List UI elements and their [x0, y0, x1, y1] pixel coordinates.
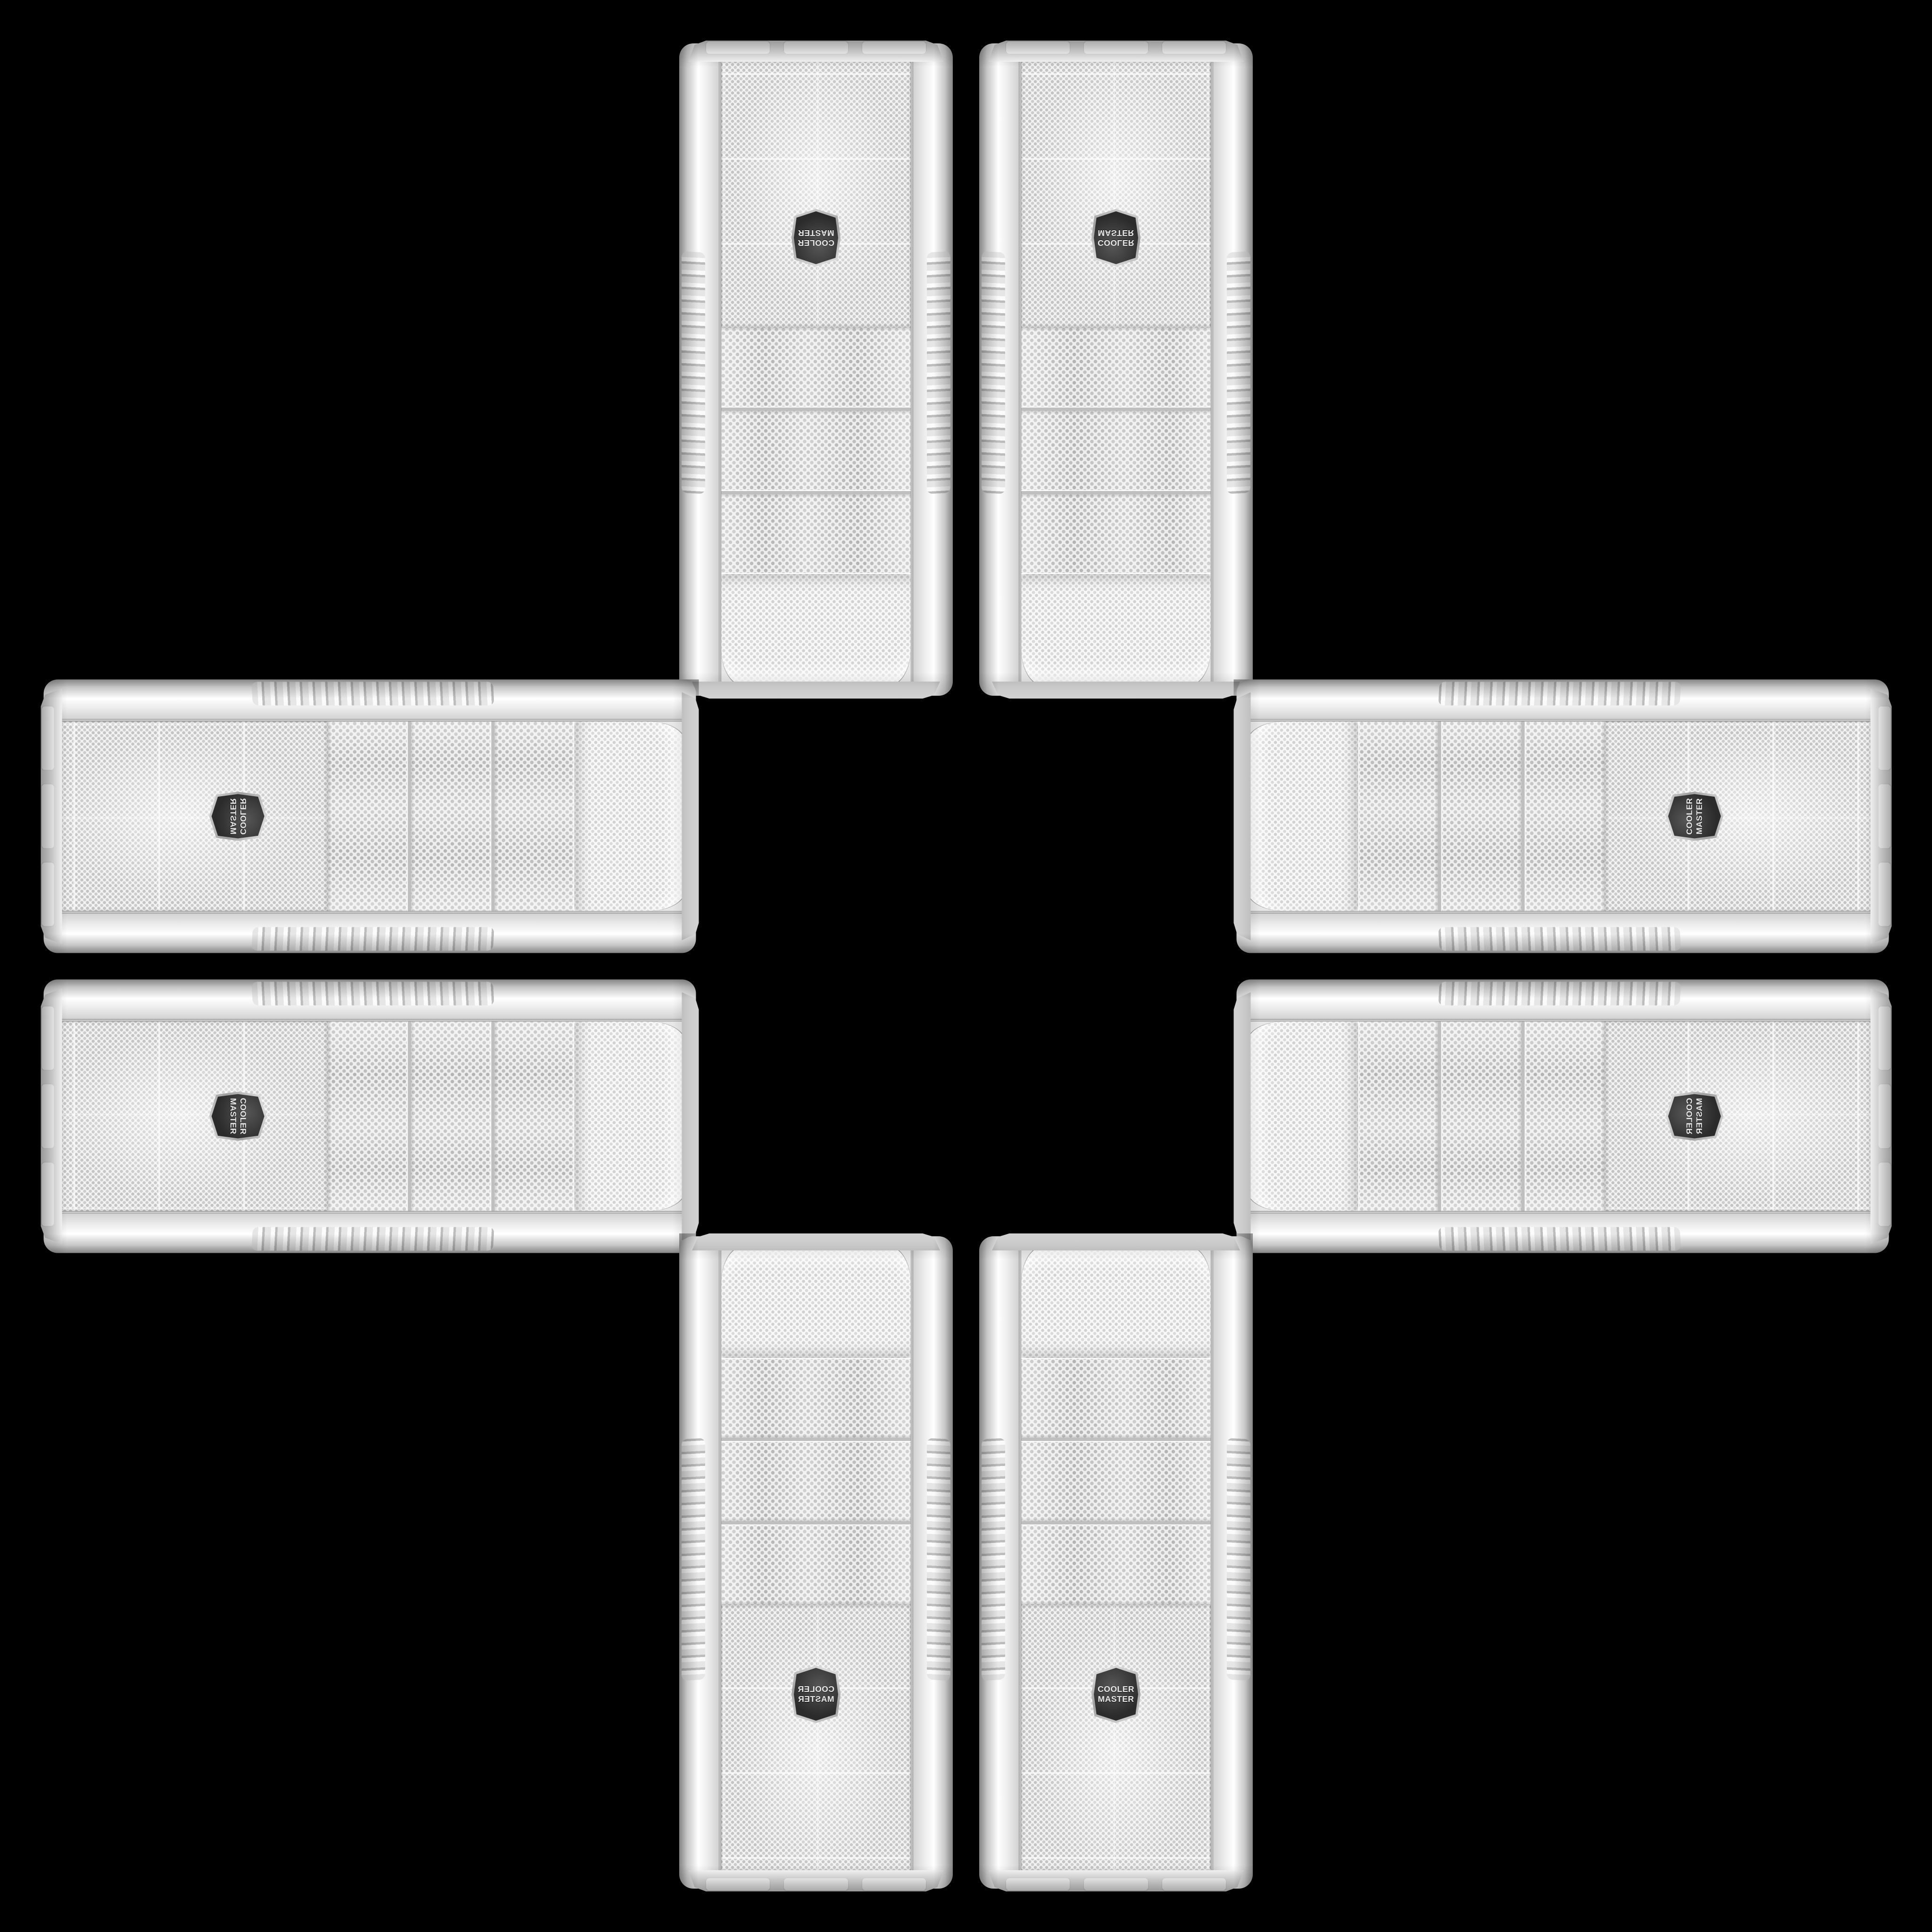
black-background: COOLER MASTER	[0, 0, 1932, 1932]
case-top-cap	[692, 682, 940, 699]
cooler-master-badge: COOLER MASTER	[1091, 209, 1141, 266]
case-bottom-cap	[41, 689, 62, 944]
badge-face: COOLER MASTER	[212, 1094, 265, 1139]
case-bottom-cap	[41, 989, 62, 1244]
cooler-master-badge: COOLER MASTER	[209, 792, 267, 841]
side-vent-ridges	[982, 1438, 1005, 1680]
drive-bay-cover	[1021, 1358, 1211, 1438]
front-bezel: COOLER MASTER	[721, 41, 911, 699]
pc-case-mirrored: COOLER MASTER	[679, 41, 953, 699]
cap-segment	[1878, 1084, 1890, 1149]
logo-text-line1: COOLER	[239, 798, 248, 835]
front-mesh-panel: COOLER MASTER	[1605, 1022, 1872, 1211]
drive-bay-cover	[411, 722, 491, 911]
top-vent-mesh	[1021, 1248, 1211, 1358]
cap-segment	[706, 42, 770, 54]
logo-text-line2: MASTER	[229, 1098, 238, 1134]
logo-text-line1: COOLER	[1098, 238, 1134, 247]
badge-face: COOLER MASTER	[1668, 794, 1721, 839]
drive-bay-cover	[721, 1358, 911, 1438]
cap-segment	[1084, 1878, 1148, 1890]
top-vent-mesh	[575, 1022, 685, 1211]
case-side-rail-left	[1237, 914, 1889, 953]
badge-face: COOLER MASTER	[1094, 1668, 1138, 1721]
case-top-cap	[1234, 692, 1251, 941]
cooler-master-badge: COOLER MASTER	[791, 1666, 841, 1723]
top-vent-mesh	[1021, 574, 1211, 684]
badge-face: COOLER MASTER	[794, 1668, 838, 1721]
front-mesh-panel: COOLER MASTER	[721, 1604, 911, 1871]
drive-bay-stack	[1358, 1022, 1605, 1211]
case-side-rail-left	[979, 43, 1019, 696]
logo-text-line2: MASTER	[1695, 798, 1704, 834]
badge-face: COOLER MASTER	[1094, 211, 1138, 264]
drive-bay-cover	[721, 1441, 911, 1521]
case-side-rail-right	[1213, 43, 1253, 696]
drive-bay-cover	[721, 411, 911, 491]
front-bezel: COOLER MASTER	[41, 722, 699, 911]
case-side-rail-left	[979, 1236, 1019, 1889]
logo-text-line1: COOLER	[1098, 1685, 1134, 1694]
pc-case-mirrored: COOLER MASTER	[1234, 980, 1892, 1253]
cap-segment	[862, 1878, 926, 1890]
drive-bay-stack	[721, 328, 911, 574]
case-bottom-cap	[988, 1870, 1244, 1891]
logo-text-line2: MASTER	[1098, 228, 1134, 237]
front-bezel: COOLER MASTER	[721, 1233, 911, 1891]
pc-case-mirrored: COOLER MASTER	[679, 1233, 953, 1891]
side-vent-ridges	[252, 927, 494, 951]
cap-segment	[784, 42, 848, 54]
chrome-trim-right	[59, 1211, 687, 1214]
cap-segment	[862, 42, 926, 54]
logo-text-line1: COOLER	[1685, 798, 1694, 835]
pc-case: COOLER MASTER	[41, 980, 699, 1253]
pc-case-mirrored: COOLER MASTER	[41, 680, 699, 953]
cap-segment	[1878, 784, 1890, 849]
cooler-master-badge: COOLER MASTER	[209, 1092, 267, 1141]
case-side-rail-right	[44, 680, 696, 719]
side-vent-ridges	[682, 1438, 705, 1680]
case-side-rail-left	[913, 43, 953, 696]
front-bezel: COOLER MASTER	[1021, 41, 1211, 699]
drive-bay-stack	[1021, 328, 1211, 574]
side-vent-ridges	[252, 1227, 494, 1251]
front-mesh-panel: COOLER MASTER	[721, 61, 911, 328]
chrome-trim-left	[911, 58, 913, 686]
case-top-cap	[1234, 992, 1251, 1241]
cap-segment	[42, 1084, 54, 1149]
cap-segment	[1006, 1878, 1070, 1890]
drive-bay-cover	[1524, 722, 1604, 911]
cap-segment	[42, 1006, 54, 1070]
cap-segment	[1006, 42, 1070, 54]
drive-bay-stack	[1021, 1358, 1211, 1604]
case-pair-bottom: COOLER MASTER	[679, 1233, 1253, 1891]
logo-text-line1: COOLER	[798, 1685, 834, 1694]
logo-text-line2: MASTER	[798, 228, 834, 237]
cap-segment	[42, 1162, 54, 1226]
top-vent-mesh	[721, 574, 911, 684]
top-vent-mesh	[575, 722, 685, 911]
drive-bay-cover	[1021, 328, 1211, 408]
cap-segment	[1162, 1878, 1226, 1890]
side-vent-ridges	[1438, 927, 1681, 951]
chrome-trim-right	[1246, 1211, 1874, 1214]
cap-segment	[706, 1878, 770, 1890]
chrome-trim-left	[59, 911, 687, 914]
cap-segment	[1878, 862, 1890, 926]
cooler-master-badge: COOLER MASTER	[1091, 1666, 1141, 1723]
front-bezel: COOLER MASTER	[1021, 1233, 1211, 1891]
drive-bay-cover	[494, 1022, 574, 1211]
side-vent-ridges	[927, 251, 950, 494]
side-vent-ridges	[252, 982, 494, 1006]
chrome-trim-right	[1211, 1246, 1213, 1874]
top-vent-mesh	[1248, 722, 1358, 911]
cap-segment	[42, 706, 54, 770]
side-vent-ridges	[252, 682, 494, 706]
drive-bay-cover	[721, 494, 911, 574]
drive-bay-cover	[328, 1022, 408, 1211]
pc-case: COOLER MASTER	[979, 41, 1253, 699]
side-vent-ridges	[1227, 251, 1250, 494]
cap-segment	[1084, 42, 1148, 54]
side-vent-ridges	[682, 251, 705, 494]
drive-bay-cover	[411, 1022, 491, 1211]
case-pair-right: COOLER MASTER	[1234, 680, 1892, 1253]
cap-segment	[1162, 42, 1226, 54]
side-vent-ridges	[1438, 1227, 1681, 1251]
drive-bay-cover	[1358, 722, 1438, 911]
case-side-rail-right	[1213, 1236, 1253, 1889]
case-bottom-cap	[688, 41, 944, 62]
badge-face: COOLER MASTER	[794, 211, 838, 264]
cap-segment	[1878, 1162, 1890, 1226]
drive-bay-cover	[1021, 494, 1211, 574]
case-top-cap	[992, 682, 1240, 699]
case-side-rail-right	[1237, 1214, 1889, 1253]
case-side-rail-left	[913, 1236, 953, 1889]
case-side-rail-right	[1237, 680, 1889, 719]
case-bottom-cap	[1871, 989, 1892, 1244]
cap-segment	[1878, 706, 1890, 770]
case-top-cap	[682, 992, 699, 1241]
case-pair-left: COOLER MASTER	[41, 680, 699, 1253]
case-side-rail-left	[44, 914, 696, 953]
front-mesh-panel: COOLER MASTER	[1021, 1604, 1211, 1871]
drive-bay-cover	[721, 1524, 911, 1604]
drive-bay-cover	[328, 722, 408, 911]
front-mesh-panel: COOLER MASTER	[61, 722, 328, 911]
top-vent-mesh	[721, 1248, 911, 1358]
case-top-cap	[682, 692, 699, 941]
top-vent-mesh	[1248, 1022, 1358, 1211]
logo-text-line1: COOLER	[239, 1098, 248, 1135]
case-side-rail-right	[679, 1236, 719, 1889]
side-vent-ridges	[1227, 1438, 1250, 1680]
case-side-rail-left	[1237, 980, 1889, 1019]
drive-bay-cover	[1021, 1524, 1211, 1604]
side-vent-ridges	[982, 251, 1005, 494]
side-vent-ridges	[1438, 682, 1681, 706]
cooler-master-badge: COOLER MASTER	[1666, 1092, 1724, 1141]
case-bottom-cap	[688, 1870, 944, 1891]
pc-case: COOLER MASTER	[1234, 680, 1892, 953]
logo-text-line2: MASTER	[1098, 1695, 1134, 1704]
drive-bay-cover	[1441, 722, 1521, 911]
drive-bay-stack	[328, 722, 575, 911]
cap-segment	[42, 862, 54, 926]
case-pair-top: COOLER MASTER	[679, 41, 1253, 699]
logo-text-line2: MASTER	[798, 1695, 834, 1704]
side-vent-ridges	[927, 1438, 950, 1680]
case-top-cap	[692, 1233, 940, 1250]
drive-bay-stack	[1358, 722, 1605, 911]
drive-bay-cover	[1358, 1022, 1438, 1211]
front-mesh-panel: COOLER MASTER	[1021, 61, 1211, 328]
chrome-trim-right	[1211, 58, 1213, 686]
badge-face: COOLER MASTER	[212, 794, 265, 839]
side-vent-ridges	[1438, 982, 1681, 1006]
cap-segment	[42, 784, 54, 849]
badge-face: COOLER MASTER	[1668, 1094, 1721, 1139]
case-side-rail-right	[44, 1214, 696, 1253]
drive-bay-stack	[328, 1022, 575, 1211]
case-bottom-cap	[1871, 689, 1892, 944]
drive-bay-stack	[721, 1358, 911, 1604]
cap-segment	[1878, 1006, 1890, 1070]
drive-bay-cover	[1021, 1441, 1211, 1521]
chrome-trim-left	[911, 1246, 913, 1874]
front-bezel: COOLER MASTER	[1234, 1022, 1892, 1211]
case-top-cap	[992, 1233, 1240, 1250]
pc-case: COOLER MASTER	[979, 1233, 1253, 1891]
case-side-rail-right	[679, 43, 719, 696]
logo-text-line2: MASTER	[229, 798, 238, 834]
chrome-trim-left	[1246, 911, 1874, 914]
front-bezel: COOLER MASTER	[1234, 722, 1892, 911]
drive-bay-cover	[1441, 1022, 1521, 1211]
drive-bay-cover	[494, 722, 574, 911]
front-bezel: COOLER MASTER	[41, 1022, 699, 1211]
case-bottom-cap	[988, 41, 1244, 62]
logo-text-line1: COOLER	[798, 238, 834, 247]
case-side-rail-left	[44, 980, 696, 1019]
drive-bay-cover	[721, 328, 911, 408]
cooler-master-badge: COOLER MASTER	[791, 209, 841, 266]
front-mesh-panel: COOLER MASTER	[61, 1022, 328, 1211]
logo-text-line2: MASTER	[1695, 1098, 1704, 1134]
drive-bay-cover	[1021, 411, 1211, 491]
front-mesh-panel: COOLER MASTER	[1605, 722, 1872, 911]
cooler-master-badge: COOLER MASTER	[1666, 792, 1724, 841]
logo-text-line1: COOLER	[1685, 1098, 1694, 1135]
drive-bay-cover	[1524, 1022, 1604, 1211]
cap-segment	[784, 1878, 848, 1890]
